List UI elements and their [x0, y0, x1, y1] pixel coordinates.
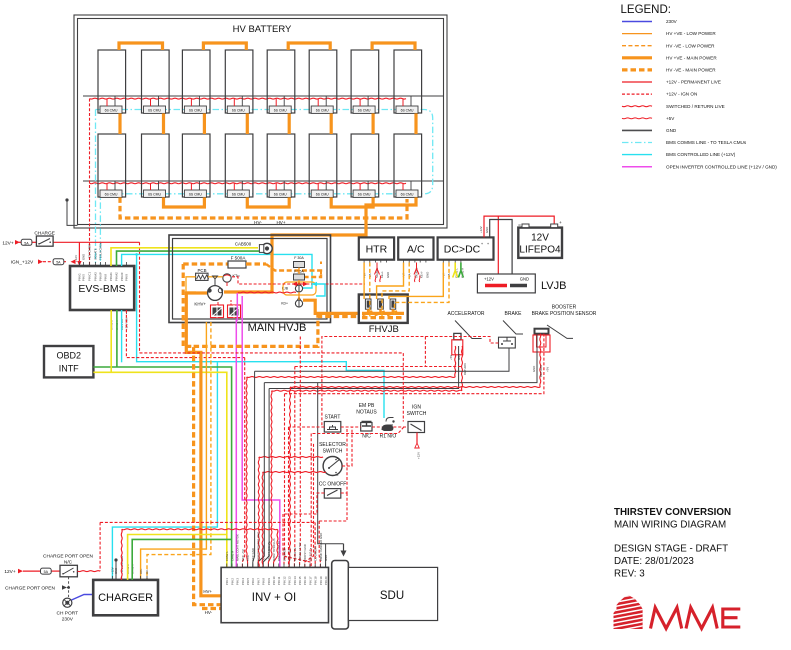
svg-text:GND: GND: [666, 128, 677, 133]
svg-text:PIN 4: PIN 4: [241, 578, 245, 585]
svg-text:HV-: HV-: [205, 610, 213, 615]
svg-text:SELECTOR: SELECTOR: [319, 442, 346, 448]
svg-text:SWITCH: SWITCH: [323, 449, 343, 455]
svg-text:PCB: PCB: [197, 268, 206, 273]
svg-text:PIN 8: PIN 8: [104, 274, 108, 281]
svg-text:BOOSTER: BOOSTER: [552, 305, 577, 311]
svg-text:EVS-BMS: EVS-BMS: [78, 283, 125, 295]
svg-text:PIN 20: PIN 20: [324, 576, 328, 585]
svg-text:FHVJB: FHVJB: [369, 324, 399, 335]
svg-text:+12V CMMS: +12V CMMS: [88, 244, 92, 260]
svg-text:BOOST SENSOR GND: BOOST SENSOR GND: [256, 532, 260, 561]
svg-text:INTF: INTF: [59, 364, 79, 374]
svg-text:CAN2 H: CAN2 H: [230, 551, 234, 561]
svg-text:CC ON/OFF: CC ON/OFF: [314, 545, 318, 561]
svg-text:RETURN: RETURN: [463, 363, 467, 375]
svg-text:MAIN HVJB: MAIN HVJB: [248, 322, 307, 334]
svg-text:DATE: 28/01/2023: DATE: 28/01/2023: [614, 556, 694, 567]
svg-text:ACC +5V: ACC +5V: [241, 549, 245, 561]
svg-text:6S CMU: 6S CMU: [316, 108, 329, 112]
svg-text:PIN 10: PIN 10: [272, 576, 276, 585]
svg-text:NOTAUS: NOTAUS: [356, 410, 377, 416]
svg-text:LVJB: LVJB: [541, 280, 566, 292]
svg-text:PIN 9: PIN 9: [267, 578, 271, 585]
svg-text:BRAKE: BRAKE: [505, 311, 523, 317]
svg-text:ACC GND: ACC GND: [251, 548, 255, 561]
svg-text:+5V: +5V: [546, 367, 550, 372]
svg-text:BOUVIGB: BOUVIGB: [282, 548, 286, 561]
svg-text:N/C: N/C: [64, 560, 73, 566]
svg-text:6S CMU: 6S CMU: [232, 108, 245, 112]
svg-text:HV-: HV-: [145, 569, 149, 574]
svg-text:START: START: [325, 415, 341, 421]
svg-text:PIN 13: PIN 13: [288, 576, 292, 585]
svg-text:6S CMU: 6S CMU: [105, 192, 118, 196]
svg-text:PIN 5: PIN 5: [82, 274, 86, 281]
svg-text:5A: 5A: [24, 241, 29, 245]
svg-text:HV -VE - LOW POWER: HV -VE - LOW POWER: [666, 43, 715, 48]
svg-text:PIN 17: PIN 17: [308, 576, 312, 585]
svg-text:PIN 18: PIN 18: [314, 576, 318, 585]
svg-text:HV+: HV+: [139, 568, 143, 574]
svg-text:CHARGE PORT OPEN: CHARGE PORT OPEN: [5, 586, 55, 592]
svg-text:+12V: +12V: [479, 226, 483, 233]
svg-text:12V+: 12V+: [2, 241, 14, 247]
svg-text:RS 232 Tx: RS 232 Tx: [308, 547, 312, 561]
svg-text:JOG SIGNAL: JOG SIGNAL: [262, 544, 266, 561]
svg-text:R1 N/O: R1 N/O: [380, 434, 397, 440]
svg-text:PIN C1: PIN C1: [88, 272, 92, 281]
svg-text:BMMC DANGER GND: BMMC DANGER GND: [319, 533, 323, 561]
svg-text:PIN 14: PIN 14: [293, 576, 297, 585]
svg-text:HV+: HV+: [203, 589, 212, 594]
svg-text:PIN 6F: PIN 6F: [120, 272, 124, 281]
svg-text:DESIGN STAGE - DRAFT: DESIGN STAGE - DRAFT: [614, 544, 728, 555]
svg-text:MABL CONT NOTOK: MABL CONT NOTOK: [236, 534, 240, 561]
svg-text:DNE (D) RELAY: DNE (D) RELAY: [277, 541, 281, 561]
svg-text:+12V - PERMANENT LIVE: +12V - PERMANENT LIVE: [666, 80, 721, 85]
svg-text:BRAKE POSITION SENSOR: BRAKE POSITION SENSOR: [532, 311, 597, 317]
svg-text:ACCELERATOR: ACCELERATOR: [447, 311, 484, 317]
svg-text:GND: GND: [426, 272, 430, 278]
svg-text:PIN 1: PIN 1: [225, 578, 229, 585]
svg-text:TESLA CMUs: TESLA CMUs: [99, 242, 103, 260]
svg-text:PIN 16: PIN 16: [303, 576, 307, 585]
svg-text:DC>DC: DC>DC: [444, 244, 481, 256]
svg-text:PIN 2: PIN 2: [230, 578, 234, 585]
svg-text:LEGEND:: LEGEND:: [621, 4, 672, 16]
svg-text:6S CMU: 6S CMU: [189, 192, 202, 196]
svg-text:CAN2 L: CAN2 L: [225, 551, 229, 561]
svg-text:BS 232 Dx: BS 232 Dx: [293, 547, 297, 561]
svg-text:KD+: KD+: [281, 302, 288, 306]
svg-text:SWITCHED / RETURN LIVE: SWITCHED / RETURN LIVE: [666, 104, 725, 109]
svg-text:12V+: 12V+: [4, 569, 16, 575]
svg-text:+5V: +5V: [449, 355, 453, 360]
svg-text:GND: GND: [520, 277, 529, 282]
svg-text:6S CMU: 6S CMU: [274, 108, 287, 112]
svg-text:+12V - IGN ON: +12V - IGN ON: [666, 92, 697, 97]
svg-text:OBD2: OBD2: [56, 351, 81, 361]
svg-text:230V: 230V: [62, 617, 74, 623]
svg-text:+5V: +5V: [666, 116, 675, 121]
svg-text:PIN 15: PIN 15: [298, 576, 302, 585]
svg-text:o: o: [519, 223, 521, 227]
svg-text:GND: GND: [457, 354, 461, 360]
svg-text:BOOST GND: BOOST GND: [303, 544, 307, 561]
svg-text:PIN A2: PIN A2: [115, 272, 119, 281]
svg-text:CHARGER: CHARGER: [98, 592, 153, 604]
svg-text:+12V: +12V: [417, 452, 421, 459]
svg-text:6S CMU: 6S CMU: [401, 192, 414, 196]
svg-text:GND: GND: [485, 227, 489, 233]
svg-text:PIN 3: PIN 3: [236, 578, 240, 585]
svg-text:F 30A: F 30A: [294, 256, 304, 260]
svg-text:INV + OI: INV + OI: [252, 592, 296, 604]
svg-text:PIN 8: PIN 8: [262, 578, 266, 585]
svg-text:CHARGE PORT OPEN: CHARGE PORT OPEN: [43, 554, 93, 560]
svg-text:SWITCH: SWITCH: [407, 411, 427, 417]
svg-text:+: +: [559, 220, 562, 225]
svg-text:PIN 9: PIN 9: [125, 274, 129, 281]
svg-text:230V: 230V: [666, 19, 678, 24]
svg-text:BMS CONTROLLED LINE (+12V): BMS CONTROLLED LINE (+12V): [666, 152, 736, 157]
svg-text:HV-: HV-: [254, 220, 262, 225]
svg-text:GND: GND: [82, 254, 86, 260]
svg-text:PIN 7: PIN 7: [256, 578, 260, 585]
svg-text:BRAKE LT SW: BRAKE LT SW: [298, 542, 302, 561]
svg-text:F 500A: F 500A: [231, 256, 247, 261]
svg-text:PIN 6P: PIN 6P: [99, 272, 103, 281]
svg-text:HV +VE - MAIN POWER: HV +VE - MAIN POWER: [666, 55, 717, 60]
svg-text:+12V: +12V: [484, 277, 494, 282]
svg-text:GND: GND: [386, 272, 390, 278]
svg-text:CH PORT: CH PORT: [57, 611, 79, 617]
svg-text:6S CMU: 6S CMU: [148, 108, 161, 112]
svg-text:REV: 3: REV: 3: [614, 569, 645, 580]
svg-text:IGN_+12V: IGN_+12V: [11, 260, 34, 266]
svg-text:6S CMU: 6S CMU: [105, 108, 118, 112]
svg-text:HTR: HTR: [366, 244, 388, 256]
svg-text:HV+: HV+: [276, 220, 285, 225]
svg-text:6S CMU: 6S CMU: [189, 108, 202, 112]
svg-text:5A: 5A: [44, 570, 49, 574]
svg-text:RETURN: RETURN: [539, 365, 543, 377]
svg-text:CC ON/OFF: CC ON/OFF: [319, 482, 347, 488]
svg-text:IGN +12V: IGN +12V: [288, 549, 292, 561]
svg-text:6S CMU: 6S CMU: [316, 192, 329, 196]
svg-text:6S CMU: 6S CMU: [358, 192, 371, 196]
svg-text:START SIGNAL: START SIGNAL: [267, 541, 271, 561]
svg-text:EM PB: EM PB: [359, 403, 375, 409]
svg-text:PIN A3: PIN A3: [94, 272, 98, 281]
svg-text:CAB500: CAB500: [235, 241, 252, 246]
svg-text:PIN 6: PIN 6: [251, 578, 255, 585]
svg-text:N/C: N/C: [362, 434, 371, 440]
svg-text:+12V IGN: +12V IGN: [125, 318, 129, 330]
svg-text:PIN 19: PIN 19: [319, 576, 323, 585]
svg-text:GND: GND: [324, 555, 328, 561]
svg-text:HV +VE - LOW POWER: HV +VE - LOW POWER: [666, 31, 716, 36]
svg-text:BMS COMMS LINE - TO TESLA CMUs: BMS COMMS LINE - TO TESLA CMUs: [666, 140, 747, 145]
svg-text:OPEN INVERTER CONTROLLED LINE: OPEN INVERTER CONTROLLED LINE (+12V / GN…: [666, 164, 777, 169]
svg-text:LIFEPO4: LIFEPO4: [519, 245, 561, 256]
svg-text:THIRSTEV CONVERSION: THIRSTEV CONVERSION: [614, 507, 731, 518]
svg-text:PIN A1: PIN A1: [109, 272, 113, 281]
svg-text:6S CMU: 6S CMU: [232, 192, 245, 196]
svg-text:SDU: SDU: [380, 590, 404, 602]
svg-text:GND: GND: [532, 366, 536, 372]
svg-text:HV -VE - MAIN POWER: HV -VE - MAIN POWER: [666, 68, 716, 73]
svg-text:IGN: IGN: [412, 405, 421, 411]
svg-text:PIN 11: PIN 11: [277, 576, 281, 585]
svg-text:6S CMU: 6S CMU: [148, 192, 161, 196]
svg-text:MAIN WIRING DIAGRAM: MAIN WIRING DIAGRAM: [614, 520, 726, 531]
svg-text:KHV+: KHV+: [194, 302, 206, 307]
svg-text:6S CMU: 6S CMU: [274, 192, 287, 196]
svg-text:6S CMU: 6S CMU: [401, 108, 414, 112]
svg-text:6S CMU: 6S CMU: [358, 108, 371, 112]
svg-text:PIN 12: PIN 12: [282, 576, 286, 585]
svg-text:5MOZ TOS/CLUS: 5MOZ TOS/CLUS: [272, 538, 276, 561]
svg-text:12V: 12V: [531, 233, 549, 244]
svg-text:HV BATTERY: HV BATTERY: [233, 24, 292, 35]
svg-text:5A: 5A: [56, 261, 61, 265]
svg-text:A/C: A/C: [407, 244, 425, 256]
svg-text:5TW: 5TW: [246, 555, 250, 561]
svg-text:ISOLATE: ISOLATE: [94, 248, 98, 260]
svg-text:PIN 5: PIN 5: [246, 578, 250, 585]
